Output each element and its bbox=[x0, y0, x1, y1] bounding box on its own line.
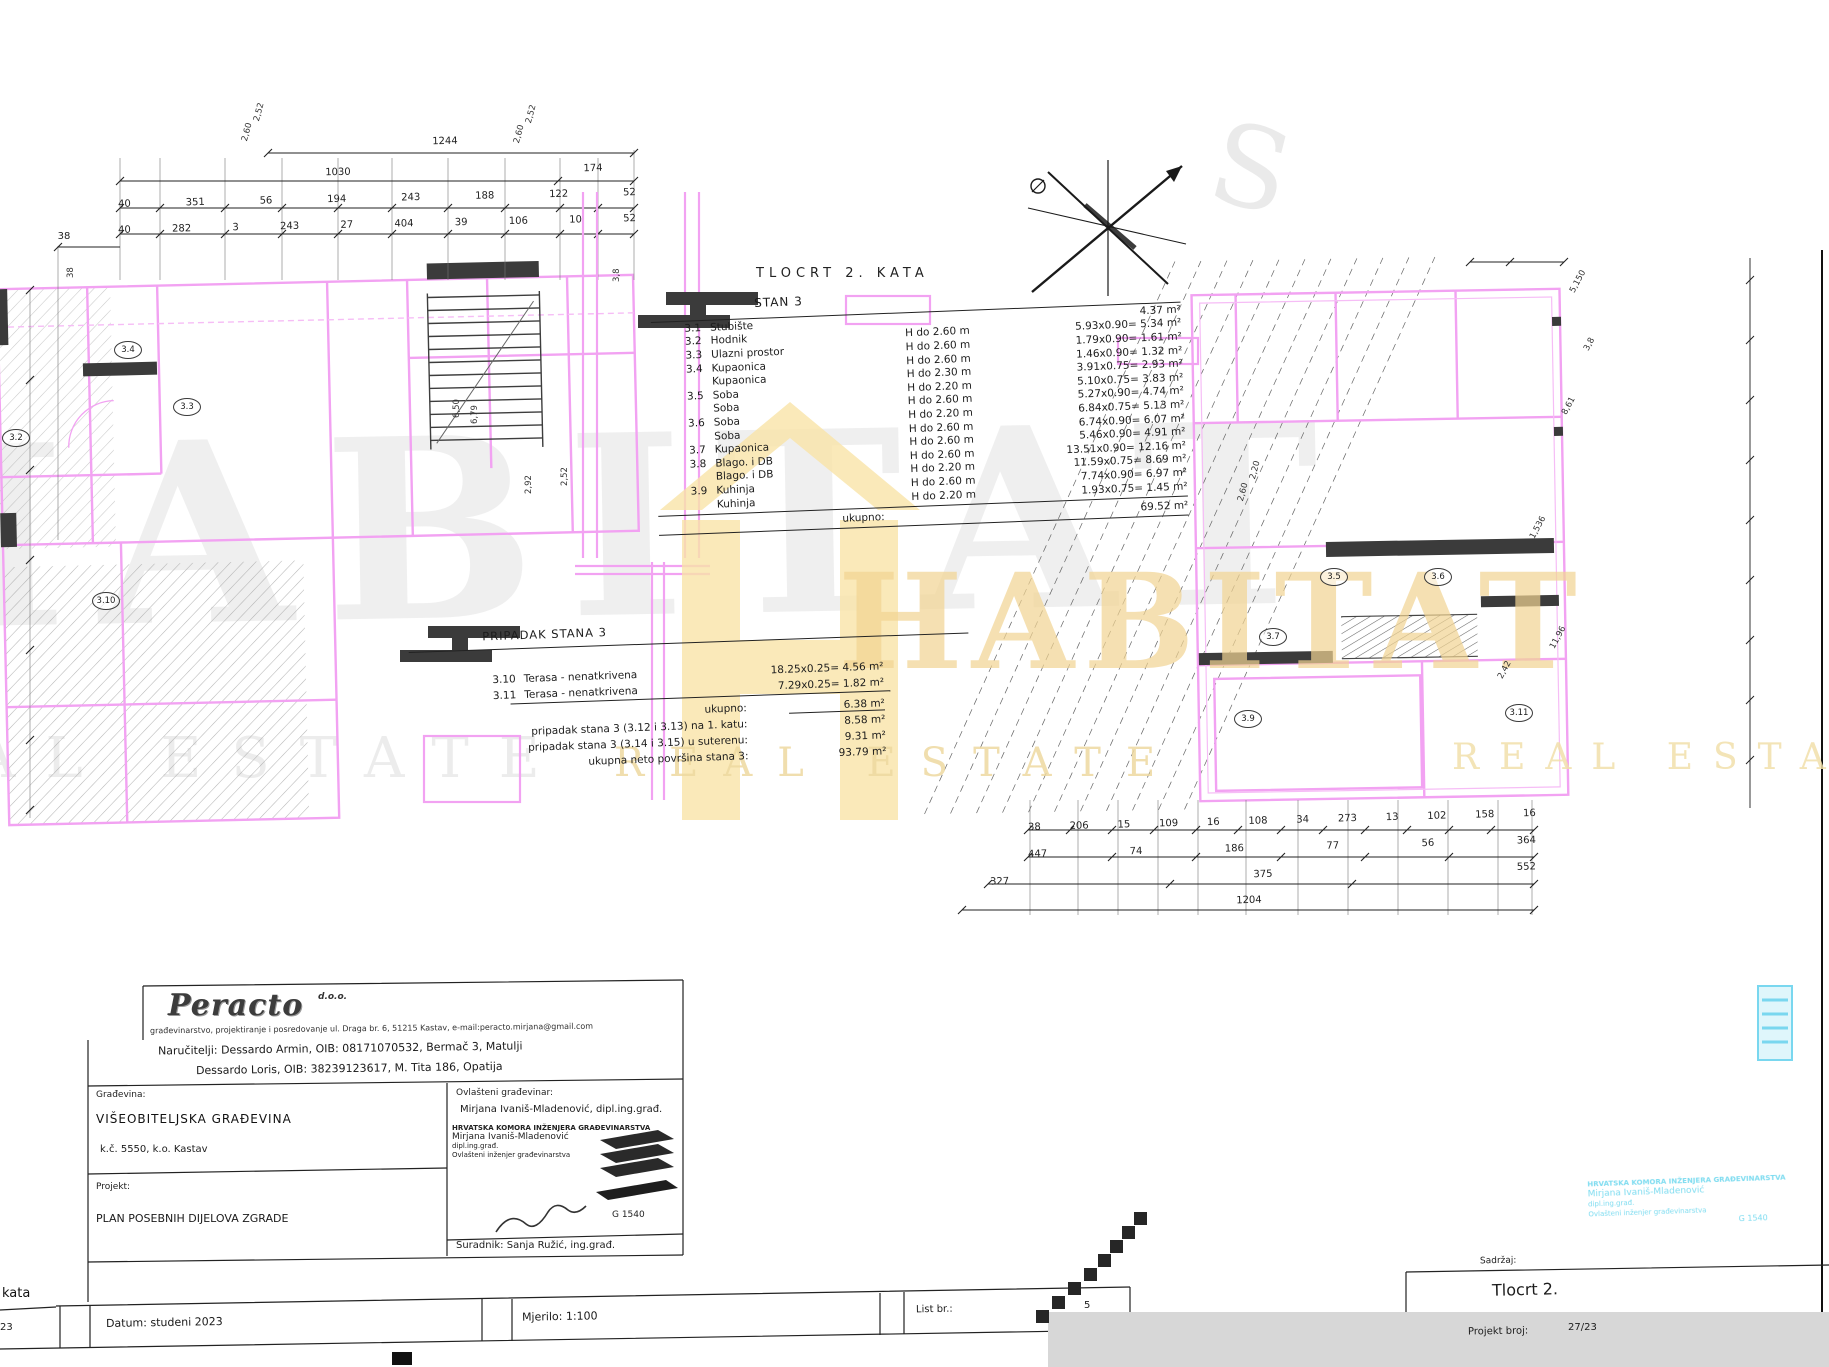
corner-number: 23 bbox=[0, 1322, 13, 1333]
room-height bbox=[858, 316, 1016, 322]
room-id: 3.1 bbox=[651, 322, 710, 336]
dim-left-174: 174 bbox=[548, 162, 638, 175]
room-id: 3.6 bbox=[655, 417, 714, 431]
room-id bbox=[653, 382, 712, 384]
dim-value: 102 bbox=[1427, 810, 1446, 822]
room-circle: 3.11 bbox=[1505, 704, 1533, 722]
sheet-number: 5 bbox=[1084, 1300, 1090, 1311]
total-value: 6.38 m² bbox=[789, 697, 885, 713]
chamber-stamp-cyan: HRVATSKA KOMORA INŽENJERA GRAĐEVINARSTVA… bbox=[1587, 1173, 1787, 1230]
company-suffix: d.o.o. bbox=[318, 992, 347, 1002]
room-id: 3.11 bbox=[472, 689, 524, 703]
dim-value: 188 bbox=[475, 190, 494, 201]
room-table-stan3: STAN 3 3.1 Stubište 4.37 m² 3.2 Hodnik H… bbox=[650, 280, 1189, 536]
summary-value: 8.58 m² bbox=[789, 713, 885, 728]
project-name: PLAN POSEBNIH DIJELOVA ZGRADE bbox=[96, 1212, 288, 1225]
dim-value: 243 bbox=[280, 221, 299, 232]
stair-hatch bbox=[1341, 614, 1478, 658]
dim-value: 40 bbox=[118, 225, 131, 236]
compass-arrowhead bbox=[1166, 166, 1182, 182]
scan-edge-artifacts bbox=[392, 986, 1829, 1367]
room-circle: 3.2 bbox=[2, 429, 30, 447]
summary-value: 93.79 m² bbox=[790, 745, 886, 760]
room-circle: 3.7 bbox=[1259, 628, 1287, 646]
dim-value: 404 bbox=[394, 218, 413, 229]
room-circle: 3.10 bbox=[92, 592, 120, 610]
dim-value: 39 bbox=[455, 217, 468, 228]
dim-side: 2,92 bbox=[524, 475, 534, 494]
building-label: Građevina: bbox=[96, 1090, 146, 1100]
scale-field: Mjerilo: 1:100 bbox=[522, 1309, 598, 1323]
dim-value: 74 bbox=[1129, 846, 1142, 857]
total-value: 69.52 m² bbox=[1068, 500, 1188, 517]
stamp-role: Ovlašteni inženjer građevinarstva bbox=[452, 1151, 650, 1160]
dim-value: 52 bbox=[623, 213, 636, 224]
dim-value: 56 bbox=[1421, 838, 1434, 849]
dim-value: 206 bbox=[1069, 820, 1088, 832]
company-logo: Peracto bbox=[168, 988, 303, 1023]
stamp-title: dipl.ing.građ. bbox=[452, 1142, 650, 1151]
project-no-label: Projekt broj: bbox=[1468, 1325, 1528, 1337]
stair-treads bbox=[427, 291, 543, 450]
dim-value: 52 bbox=[623, 187, 636, 198]
dim-value: 3 bbox=[232, 222, 239, 233]
compass-rose bbox=[1028, 160, 1186, 296]
room-id bbox=[655, 436, 714, 438]
room-id bbox=[658, 504, 717, 506]
dim-side: 3,8 bbox=[612, 268, 622, 282]
black-walls bbox=[1193, 317, 1567, 665]
room-id: 3.5 bbox=[654, 389, 713, 403]
dim-value: 16 bbox=[1523, 808, 1536, 819]
plan-title: TLOCRT 2. KATA bbox=[756, 266, 929, 281]
room-id: 3.2 bbox=[651, 335, 710, 349]
stamp-number: G 1540 bbox=[612, 1210, 645, 1220]
stamp-name: Mirjana Ivaniš-Mladenović bbox=[452, 1133, 650, 1142]
signature bbox=[496, 1205, 586, 1232]
building-name: VIŠEOBITELJSKA GRAĐEVINA bbox=[96, 1112, 292, 1126]
dim-side: 2,52 bbox=[560, 467, 570, 486]
dim-left-corner: 38 bbox=[44, 231, 84, 242]
room-id: 3.8 bbox=[656, 457, 715, 471]
room-id: 3.10 bbox=[472, 673, 524, 687]
summary-value: 9.31 m² bbox=[790, 729, 886, 744]
dim-value: 34 bbox=[1296, 814, 1309, 825]
room-id: 3.3 bbox=[652, 349, 711, 363]
dim-value: 282 bbox=[172, 223, 191, 234]
dim-value: 13 bbox=[1386, 812, 1399, 823]
dim-value: 27 bbox=[340, 220, 353, 231]
room-circle: 3.9 bbox=[1234, 710, 1262, 728]
engineer-name: Mirjana Ivaniš-Mladenović, dipl.ing.građ… bbox=[460, 1104, 662, 1115]
room-id bbox=[657, 477, 716, 479]
dim-side: 38 bbox=[66, 267, 76, 278]
date-field: Datum: studeni 2023 bbox=[106, 1315, 223, 1330]
project-no: 27/23 bbox=[1568, 1322, 1597, 1333]
project-label: Projekt: bbox=[96, 1182, 130, 1192]
dim-value: 122 bbox=[549, 189, 568, 200]
chamber-stamp: HRVATSKA KOMORA INŽENJERA GRAĐEVINARSTVA… bbox=[452, 1124, 650, 1160]
room-circle: 3.3 bbox=[173, 398, 201, 416]
room-table-pripadak: PRIPADAK STANA 3 3.10 Terasa - nenatkriv… bbox=[408, 612, 973, 775]
dim-value: 77 bbox=[1326, 840, 1339, 851]
dim-value: 109 bbox=[1159, 818, 1178, 830]
dim-value: 194 bbox=[327, 194, 346, 205]
dim-value: 108 bbox=[1248, 815, 1267, 827]
dim-value: 38 bbox=[1028, 822, 1041, 833]
collaborator: Suradnik: Sanja Ružić, ing.građ. bbox=[456, 1240, 615, 1251]
corner-text: kata bbox=[2, 1286, 30, 1301]
room-id: 3.7 bbox=[656, 444, 715, 458]
dim-value: 273 bbox=[1338, 813, 1357, 825]
dim-value: 447 bbox=[1028, 849, 1047, 861]
engineer-label: Ovlašteni građevinar: bbox=[456, 1088, 553, 1098]
room-id: 3.9 bbox=[657, 485, 716, 499]
dim-value: 158 bbox=[1475, 809, 1494, 821]
room-circle: 3.5 bbox=[1320, 568, 1348, 586]
room-id: 3.4 bbox=[652, 362, 711, 376]
dim-value: 375 bbox=[1253, 869, 1272, 881]
dim-value: 16 bbox=[1207, 817, 1220, 828]
sheet-label: List br.: bbox=[916, 1304, 953, 1316]
dim-value: 15 bbox=[1117, 819, 1130, 830]
content-label: Sadržaj: bbox=[1480, 1256, 1517, 1267]
parcel: k.č. 5550, k.o. Kastav bbox=[100, 1144, 208, 1155]
dim-value: 364 bbox=[1517, 835, 1536, 847]
stan3-rows: 3.1 Stubište 4.37 m² 3.2 Hodnik H do 2.6… bbox=[651, 303, 1188, 514]
content-title: Tlocrt 2. bbox=[1492, 1279, 1558, 1300]
dim-value: 186 bbox=[1225, 843, 1244, 855]
dim-value: 56 bbox=[260, 195, 273, 206]
dim-value: 327 bbox=[990, 876, 1009, 888]
dim-side: 6,50 bbox=[452, 399, 462, 418]
room-circle: 3.6 bbox=[1424, 568, 1452, 586]
scanned-floor-plan-sheet: HABITAT REAL ESTATE S bbox=[0, 0, 1829, 1367]
room-circle: 3.4 bbox=[114, 341, 142, 359]
dim-value: 552 bbox=[1517, 861, 1536, 873]
dim-value: 243 bbox=[401, 192, 420, 203]
dim-value: 106 bbox=[509, 216, 528, 227]
room-id bbox=[654, 409, 713, 411]
dim-value: 10 bbox=[569, 214, 582, 225]
hatch-area bbox=[3, 560, 309, 825]
dim-value: 40 bbox=[118, 199, 131, 210]
dim-value: 351 bbox=[186, 197, 205, 208]
dim-side: 6,79 bbox=[470, 405, 480, 424]
